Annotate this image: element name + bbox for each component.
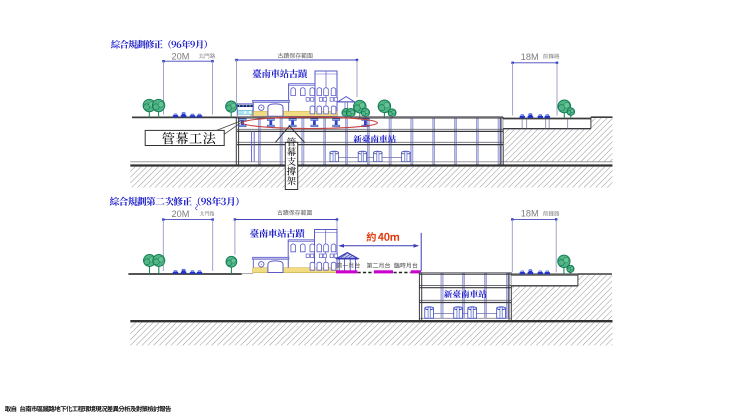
svg-text:20M: 20M: [172, 209, 190, 219]
svg-text:18M: 18M: [521, 208, 539, 218]
svg-text:20M: 20M: [172, 51, 190, 61]
svg-text:18M: 18M: [521, 52, 539, 62]
